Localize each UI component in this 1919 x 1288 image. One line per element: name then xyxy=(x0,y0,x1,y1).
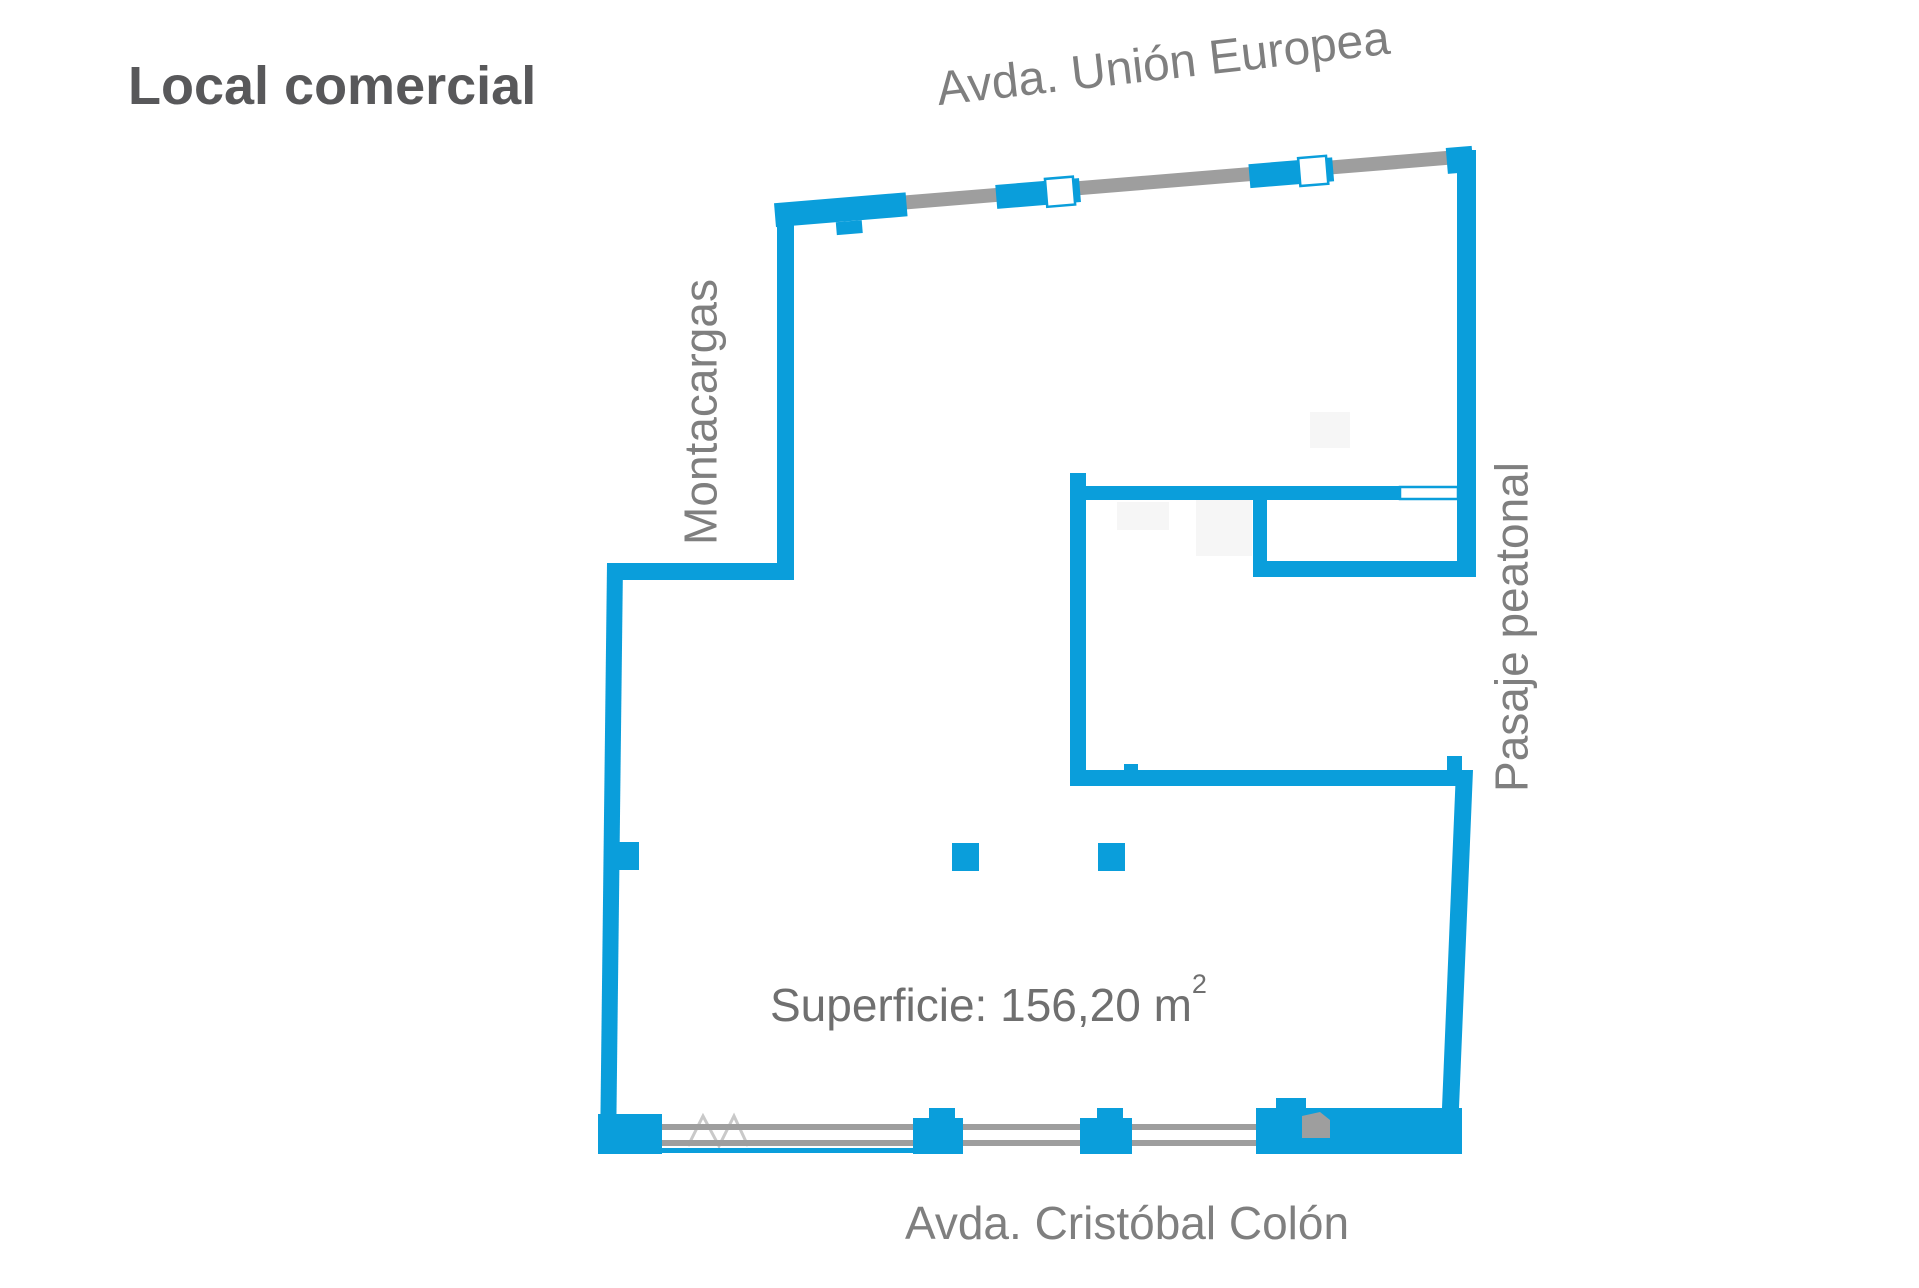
window-segment xyxy=(963,1124,1080,1130)
wall-corner xyxy=(598,1114,662,1154)
room-bottom-wall xyxy=(1253,561,1476,577)
wall-pier xyxy=(1080,1118,1132,1154)
column xyxy=(952,843,979,871)
window-segment xyxy=(963,1140,1080,1146)
window-segment xyxy=(662,1140,913,1146)
bottom-facade-wall xyxy=(598,1098,1462,1154)
montacargas-label: Montacargas xyxy=(676,279,727,545)
right-upper-wall xyxy=(1457,150,1476,576)
window-segment xyxy=(1077,167,1252,195)
wall-pier xyxy=(929,1108,955,1120)
wall-pier xyxy=(913,1118,963,1154)
street-label-bottom: Avda. Cristóbal Colón xyxy=(905,1198,1349,1249)
top-facade-wall xyxy=(774,144,1475,240)
wall-pilaster xyxy=(617,842,639,870)
window-segment xyxy=(1132,1124,1256,1130)
room-left-wall xyxy=(1253,492,1267,568)
surface-area-label: Superficie: 156,20 m2 xyxy=(770,970,1207,1031)
columns xyxy=(952,843,1125,871)
wall-pier xyxy=(1097,1108,1123,1120)
wall-stub xyxy=(1447,756,1462,774)
floorplan-drawing xyxy=(0,0,1919,1288)
inner-vertical-wall xyxy=(1070,473,1086,785)
pasaje-peatonal-label: Pasaje peatonal xyxy=(1487,462,1538,792)
entrance-corner-block xyxy=(1256,1108,1462,1154)
door-leaf xyxy=(1045,177,1075,207)
window-segment xyxy=(1132,1140,1256,1146)
surface-area-text: Superficie: 156,20 m xyxy=(770,979,1192,1031)
wall-step xyxy=(1276,1098,1306,1110)
inner-window xyxy=(1400,487,1458,499)
window-segment xyxy=(904,188,999,210)
ghost-marks xyxy=(1117,412,1350,556)
inner-upper-wall xyxy=(1070,486,1400,500)
column xyxy=(1098,843,1125,871)
window-segment xyxy=(662,1124,913,1130)
right-lower-wall xyxy=(1441,770,1473,1132)
window-segment xyxy=(1330,150,1453,174)
surface-area-superscript: 2 xyxy=(1192,969,1207,999)
left-step-wall xyxy=(616,563,794,580)
floorplan-page: Local comercial Avda. Unión Europea Mont… xyxy=(0,0,1919,1288)
left-upper-wall xyxy=(777,206,794,580)
wall-stub xyxy=(1124,764,1138,771)
wall-pier xyxy=(836,220,863,235)
door-leaf xyxy=(1298,156,1328,186)
window-sill xyxy=(662,1148,913,1153)
inner-lower-wall xyxy=(1070,770,1462,786)
page-title: Local comercial xyxy=(128,55,536,117)
